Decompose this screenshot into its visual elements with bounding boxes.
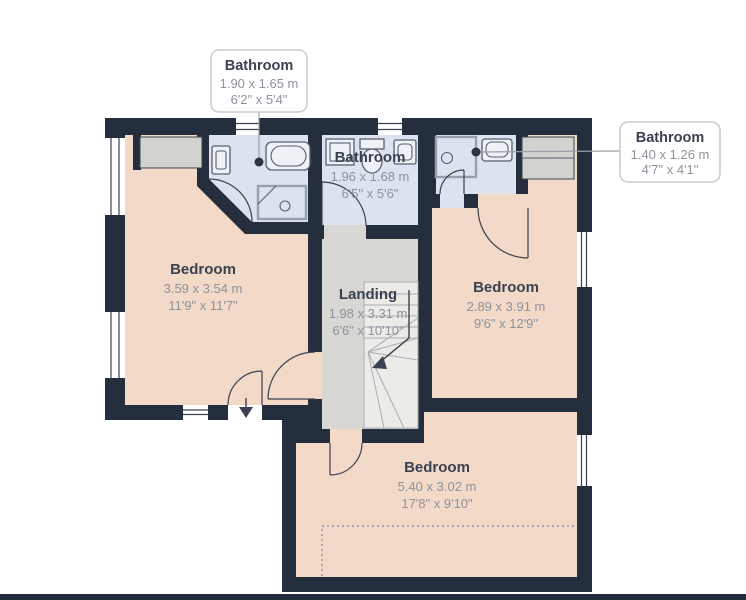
- room-metric: 1.98 x 3.31 m: [329, 306, 408, 321]
- window: [577, 435, 592, 486]
- callout-anchor-dot: [255, 158, 264, 167]
- stairs-area: [364, 282, 418, 428]
- room-metric: 5.40 x 3.02 m: [398, 479, 477, 494]
- label-bedroom-left: Bedroom 3.59 x 3.54 m 11'9" x 11'7": [164, 261, 243, 313]
- floorplan-page: Bathroom 1.96 x 1.68 m 6'5" x 5'6" Bedro…: [0, 0, 746, 600]
- callout-imperial: 6'2" x 5'4": [231, 92, 288, 107]
- sink-icon: [212, 146, 230, 174]
- room-title: Bathroom: [335, 149, 406, 166]
- doorway-bedroom-left: [308, 352, 322, 399]
- staircase: [364, 282, 418, 428]
- label-bathroom-middle: Bathroom 1.96 x 1.68 m 6'5" x 5'6": [331, 149, 410, 201]
- callout-imperial: 4'7" x 4'1": [642, 162, 699, 177]
- wardrobe-left: [140, 137, 202, 168]
- label-landing: Landing 1.98 x 3.31 m 6'6" x 10'10": [329, 286, 408, 338]
- callout-metric: 1.90 x 1.65 m: [220, 76, 299, 91]
- room-metric: 3.59 x 3.54 m: [164, 281, 243, 296]
- callout-metric: 1.40 x 1.26 m: [631, 147, 710, 162]
- doorway-bedroom-bottom: [330, 429, 362, 443]
- window: [378, 118, 402, 135]
- room-title: Bedroom: [404, 459, 470, 476]
- label-bedroom-bottom: Bedroom 5.40 x 3.02 m 17'8" x 9'10": [398, 459, 477, 511]
- room-title: Bedroom: [473, 279, 539, 296]
- doorway-bathroom-right: [440, 194, 464, 208]
- room-imperial: 11'9" x 11'7": [168, 298, 238, 313]
- toilet-cistern-icon: [360, 139, 384, 149]
- doorway-bedroom-right: [478, 194, 528, 208]
- window: [183, 405, 208, 420]
- window: [236, 118, 259, 135]
- room-imperial: 6'5" x 5'6": [342, 186, 399, 201]
- bottom-divider-bar: [0, 594, 746, 600]
- room-title: Landing: [339, 286, 397, 303]
- room-metric: 2.89 x 3.91 m: [467, 299, 546, 314]
- floorplan-svg: Bathroom 1.96 x 1.68 m 6'5" x 5'6" Bedro…: [0, 0, 746, 600]
- callout-anchor-dot: [472, 148, 481, 157]
- room-metric: 1.96 x 1.68 m: [331, 169, 410, 184]
- label-bedroom-right: Bedroom 2.89 x 3.91 m 9'6" x 12'9": [467, 279, 546, 331]
- callout-title: Bathroom: [225, 58, 293, 74]
- window: [577, 232, 592, 287]
- room-imperial: 17'8" x 9'10": [401, 496, 473, 511]
- window: [105, 138, 125, 215]
- callout-title: Bathroom: [636, 130, 704, 146]
- room-imperial: 6'6" x 10'10": [332, 323, 404, 338]
- doorway-bathroom-middle: [324, 225, 366, 239]
- room-title: Bedroom: [170, 261, 236, 278]
- room-imperial: 9'6" x 12'9": [474, 316, 538, 331]
- window: [105, 312, 125, 378]
